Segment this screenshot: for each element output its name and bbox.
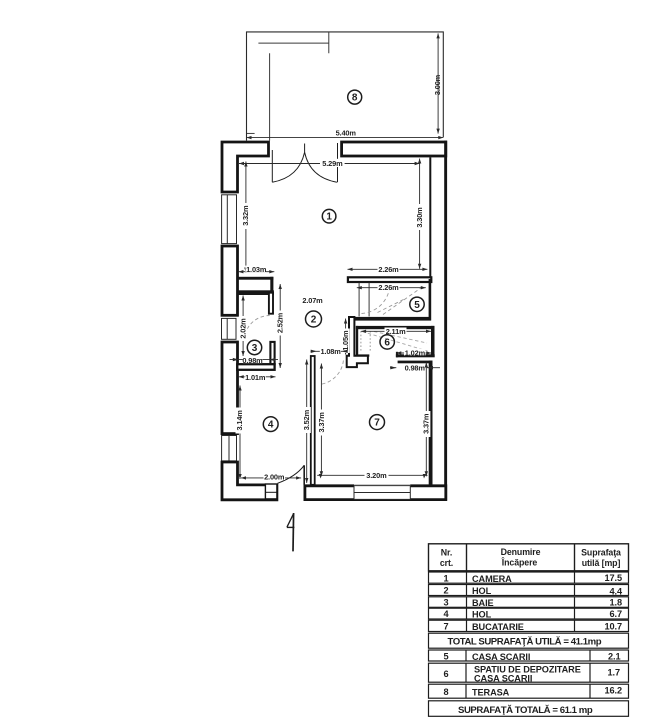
svg-text:CASA SCARII: CASA SCARII (474, 674, 532, 684)
svg-text:Denumire: Denumire (501, 547, 541, 557)
svg-text:3.14m: 3.14m (235, 410, 244, 431)
svg-text:BAIE: BAIE (472, 598, 494, 608)
svg-text:2.26m: 2.26m (378, 265, 399, 274)
svg-text:2.00m: 2.00m (264, 473, 285, 482)
svg-text:1: 1 (443, 574, 448, 584)
svg-text:17.5: 17.5 (605, 573, 622, 583)
svg-text:1: 1 (326, 212, 332, 223)
svg-text:utilă [mp]: utilă [mp] (582, 558, 621, 568)
svg-text:3.37m: 3.37m (422, 413, 431, 434)
svg-text:7: 7 (443, 622, 448, 632)
svg-text:3.37m: 3.37m (317, 412, 326, 433)
svg-text:7: 7 (374, 418, 380, 429)
svg-text:SUPRAFAŢĂ TOTALĂ = 61.1 mp: SUPRAFAŢĂ TOTALĂ = 61.1 mp (458, 705, 593, 716)
svg-text:6.7: 6.7 (610, 609, 622, 619)
svg-text:0.98m: 0.98m (405, 364, 426, 373)
svg-text:6: 6 (384, 337, 390, 348)
svg-text:2.07m: 2.07m (302, 296, 323, 305)
svg-text:TOTAL SUPRAFAŢĂ UTILĂ = 41.1mp: TOTAL SUPRAFAŢĂ UTILĂ = 41.1mp (448, 637, 602, 648)
svg-text:2.52m: 2.52m (276, 312, 285, 333)
svg-text:BUCATARIE: BUCATARIE (472, 622, 524, 632)
svg-text:5: 5 (443, 652, 448, 662)
svg-text:1.8: 1.8 (610, 597, 622, 607)
svg-text:1.02m: 1.02m (405, 348, 426, 357)
svg-text:CASA SCARII: CASA SCARII (472, 652, 530, 662)
svg-text:4: 4 (268, 420, 274, 431)
svg-text:2.26m: 2.26m (378, 283, 399, 292)
svg-text:10.7: 10.7 (605, 622, 622, 632)
svg-text:1.7: 1.7 (608, 668, 620, 678)
svg-text:2: 2 (443, 586, 448, 596)
svg-text:TERASA: TERASA (472, 687, 510, 697)
svg-text:1.03m: 1.03m (246, 265, 267, 274)
svg-text:Încăpere: Încăpere (501, 557, 538, 568)
svg-text:Suprafaţa: Suprafaţa (581, 547, 621, 557)
svg-text:16.2: 16.2 (605, 685, 622, 695)
svg-text:3: 3 (252, 343, 258, 354)
svg-text:5.40m: 5.40m (336, 129, 357, 138)
svg-text:8: 8 (443, 687, 448, 697)
svg-text:crt.: crt. (440, 558, 453, 568)
svg-text:HOL: HOL (472, 586, 492, 596)
svg-text:CAMERA: CAMERA (472, 574, 512, 584)
svg-text:3: 3 (443, 598, 448, 608)
svg-text:5: 5 (414, 300, 420, 311)
svg-text:2.1: 2.1 (608, 651, 620, 661)
svg-text:4.4: 4.4 (610, 586, 623, 596)
svg-text:3.52m: 3.52m (302, 409, 311, 430)
svg-text:6: 6 (443, 669, 448, 679)
svg-text:2.02m: 2.02m (239, 318, 248, 339)
svg-text:1.05m: 1.05m (341, 330, 350, 351)
svg-text:0.98m: 0.98m (242, 356, 263, 365)
svg-text:3.00m: 3.00m (433, 74, 442, 95)
svg-text:1.08m: 1.08m (320, 347, 341, 356)
svg-text:Nr.: Nr. (441, 547, 452, 557)
svg-text:8: 8 (352, 93, 358, 104)
svg-text:3.20m: 3.20m (366, 471, 387, 480)
svg-text:HOL: HOL (472, 610, 492, 620)
svg-text:3.30m: 3.30m (415, 207, 424, 228)
svg-text:1.01m: 1.01m (245, 373, 266, 382)
svg-text:5.29m: 5.29m (322, 159, 343, 168)
svg-text:2: 2 (311, 315, 317, 326)
svg-text:3.32m: 3.32m (241, 205, 250, 226)
